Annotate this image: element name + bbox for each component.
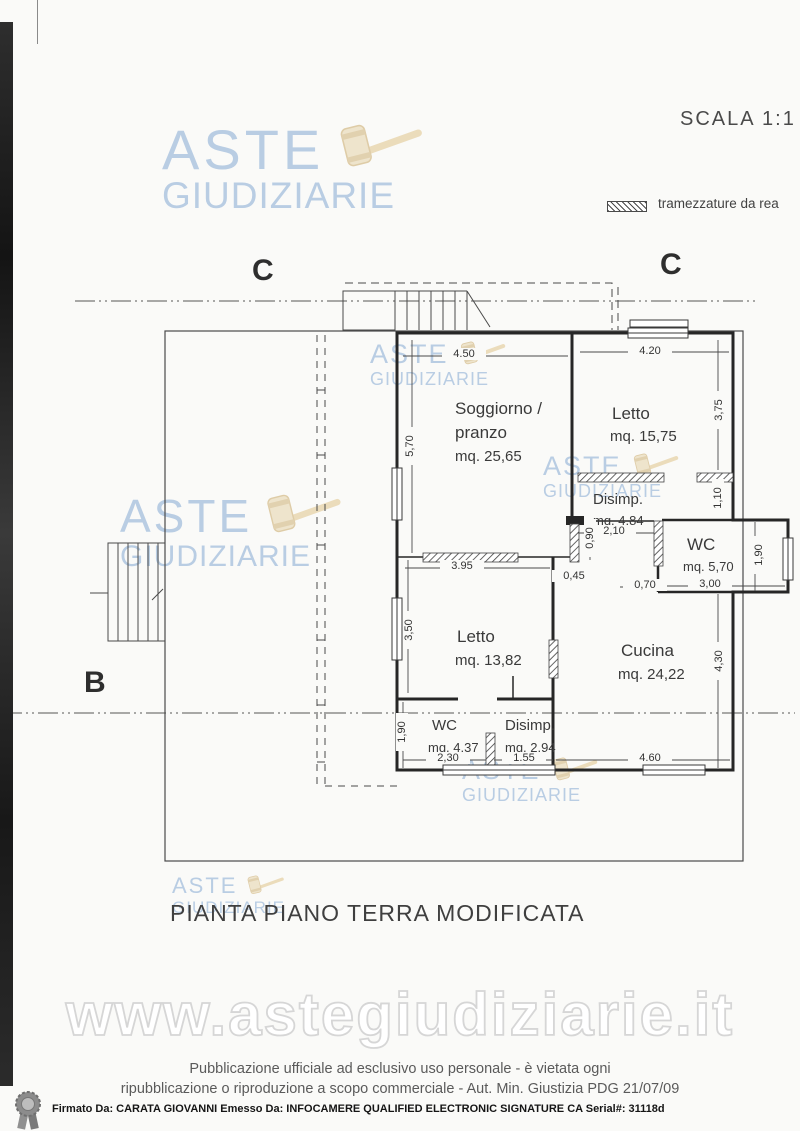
room-label-disimp1: Disimp. <box>593 491 643 508</box>
dim-corridor-len: 2,10 <box>592 525 636 537</box>
interior-walls <box>397 333 733 770</box>
watermark-in-plan-1: ASTE GIUDIZIARIE <box>370 340 507 388</box>
room-label-soggiorno-2: pranzo <box>455 423 507 443</box>
page-title: PIANTA PIANO TERRA MODIFICATA <box>170 900 585 927</box>
gavel-icon <box>547 756 599 786</box>
ribbon-seal-icon <box>6 1090 50 1131</box>
room-area-soggiorno: mq. 25,65 <box>455 448 522 465</box>
dim-letto2-left: 3,50 <box>403 611 415 649</box>
scan-edge-line <box>37 0 38 44</box>
footer-line-1: Pubblicazione ufficiale ad esclusivo uso… <box>0 1061 800 1077</box>
section-marker-b: B <box>84 666 106 700</box>
dim-disimp1-right: 1,10 <box>712 479 724 517</box>
scanned-document-page: ASTE GIUDIZIARIE ASTE GIUDIZIARIE ASTE G… <box>0 0 800 1131</box>
dim-letto1-top: 4.20 <box>628 345 672 357</box>
dim-letto2-top: 3.95 <box>440 560 484 572</box>
new-partitions-hatched <box>423 473 733 771</box>
entrance-stairs <box>343 283 618 330</box>
dim-cucina-bottom: 4.60 <box>628 752 672 764</box>
brand-text: ASTE <box>162 123 324 176</box>
dim-letto1-right: 3,75 <box>713 391 725 429</box>
gavel-icon <box>628 452 680 482</box>
dim-corridor-w: 0,90 <box>584 519 596 557</box>
room-label-cucina: Cucina <box>621 641 674 661</box>
dim-cucina-right: 4,30 <box>713 642 725 680</box>
section-marker-c-left: C <box>252 254 274 288</box>
legend-label: tramezzature da rea <box>658 196 779 211</box>
dim-disimp2-bottom: 1.55 <box>502 752 546 764</box>
signature-line: Firmato Da: CARATA GIOVANNI Emesso Da: I… <box>52 1103 665 1115</box>
dim-wc1-offset: 0,70 <box>623 579 667 591</box>
room-label-wc2: WC <box>432 717 457 734</box>
brand-text: GIUDIZIARIE <box>162 177 425 214</box>
brand-text: ASTE <box>370 342 449 368</box>
room-area-letto1: mq. 15,75 <box>610 428 677 445</box>
gavel-icon <box>258 492 343 542</box>
room-label-disimp2: Disimp. <box>505 717 555 734</box>
brand-text: GIUDIZIARIE <box>370 370 507 388</box>
room-label-letto2: Letto <box>457 627 495 647</box>
dim-wc2-left: 1,90 <box>396 713 408 751</box>
section-marker-c-right: C <box>660 248 682 282</box>
gavel-icon <box>243 874 285 899</box>
room-area-letto2: mq. 13,82 <box>455 652 522 669</box>
brand-text: ASTE <box>543 454 622 480</box>
brand-text: ASTE <box>120 495 252 539</box>
brand-text: GIUDIZIARIE <box>120 542 343 572</box>
brand-text: GIUDIZIARIE <box>462 786 599 804</box>
dim-wc1-bay: 1,90 <box>753 536 765 574</box>
dim-soggiorno-top: 4.50 <box>442 348 486 360</box>
footer-line-2: ripubblicazione o riproduzione a scopo c… <box>0 1081 800 1097</box>
scan-edge-strip <box>0 22 13 1086</box>
watermark-logo-top: ASTE GIUDIZIARIE <box>162 122 425 214</box>
lot-boundary <box>165 331 743 861</box>
gavel-icon <box>330 122 425 177</box>
brand-text: ASTE <box>172 876 237 897</box>
room-label-soggiorno: Soggiorno / <box>455 399 542 419</box>
dim-soggiorno-left: 5,70 <box>404 427 416 465</box>
dim-wc2-bottom: 2,30 <box>426 752 470 764</box>
partition-hatch-swatch <box>607 201 647 212</box>
room-area-cucina: mq. 24,22 <box>618 666 685 683</box>
dim-niche: 0,45 <box>552 570 596 582</box>
room-label-wc1: WC <box>687 535 715 555</box>
room-label-letto1: Letto <box>612 404 650 424</box>
room-area-wc1: mq. 5,70 <box>683 559 734 574</box>
dim-wc1-width: 3,00 <box>688 578 732 590</box>
watermark-url: www.astegiudiziarie.it <box>0 980 800 1049</box>
scale-label: SCALA 1:1 <box>680 108 796 131</box>
watermark-logo-left: ASTE GIUDIZIARIE <box>120 492 343 572</box>
